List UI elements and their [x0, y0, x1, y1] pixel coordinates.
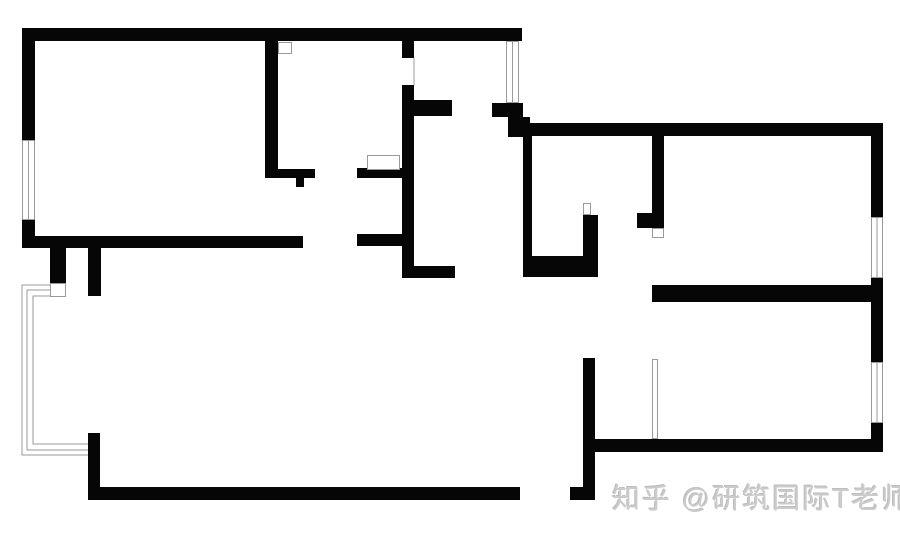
wall-west-wall-upper	[22, 28, 35, 140]
wall-hall-north-wall-west	[357, 234, 402, 246]
wall-south-wall-right-unit	[593, 439, 883, 452]
watermark: 知乎 @研筑国际T老师	[612, 484, 900, 514]
bay-window-line	[22, 285, 88, 455]
wall-north-wall-right-unit	[520, 123, 883, 136]
floor-plan-canvas	[0, 0, 900, 543]
wall-north-wall-left-unit	[22, 28, 522, 41]
wall-bath-north-wall	[412, 100, 452, 116]
wall-right-unit-west-wall	[523, 136, 532, 275]
marker-kitchen-counter	[368, 156, 400, 170]
wall-south-wall-left-unit	[88, 487, 520, 500]
wall-closet-west-wall	[652, 136, 664, 213]
marker-kitchen-door-marker	[279, 43, 292, 54]
wall-hall-south-wall-west	[402, 266, 455, 278]
marker-bay-window-sill	[51, 284, 66, 297]
wall-kitchen-south-stub	[296, 178, 304, 187]
marker-small-room-door	[584, 204, 591, 215]
wall-bath-west-wall-upper	[402, 41, 414, 58]
wall-kitchen-southwest-wall	[265, 169, 315, 178]
marker-bedroom-sliding-door	[653, 360, 658, 439]
wall-south-wall-corner	[570, 487, 595, 500]
wall-central-south-wall	[583, 358, 595, 500]
wall-small-room-east-wall	[583, 215, 598, 277]
wall-south-wall-stub-west	[50, 248, 66, 285]
wall-bedroom-north-wall	[652, 285, 883, 302]
wall-east-wall-upper	[871, 123, 883, 217]
wall-living-room-south-wall	[22, 236, 303, 248]
wall-closet-stub	[637, 213, 664, 228]
floor-plan-page: 知乎 @研筑国际T老师	[0, 0, 900, 543]
wall-southwest-corner-wall	[88, 433, 100, 500]
wall-shaft-south-wall	[492, 103, 523, 117]
wall-east-wall-middle	[871, 278, 883, 362]
bay-window-line	[33, 296, 88, 444]
wall-south-wall-stub-east	[88, 248, 101, 296]
marker-closet-door	[653, 229, 664, 238]
wall-kitchen-west-wall	[265, 41, 278, 172]
bay-window-line	[27, 290, 88, 450]
